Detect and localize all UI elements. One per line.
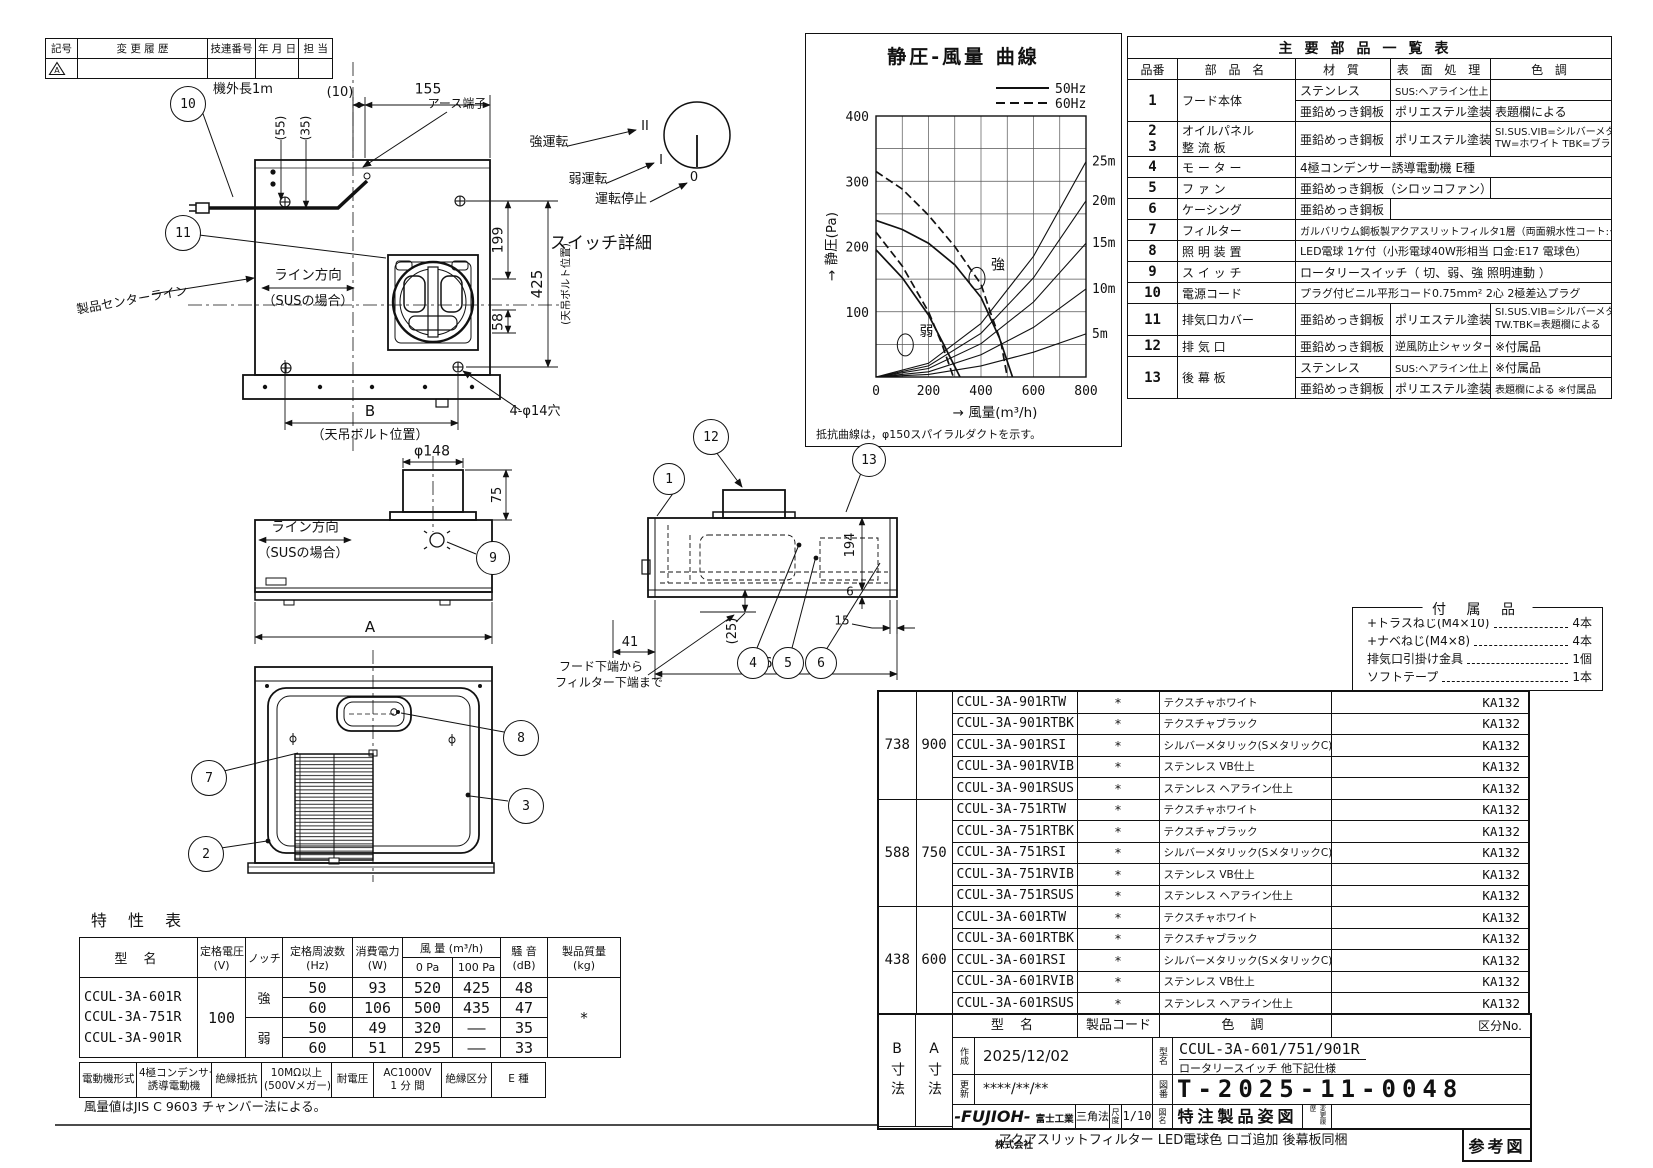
product-code: * xyxy=(1077,842,1159,864)
spec-header-model: 型 名 xyxy=(80,938,198,978)
model-name: CCUL-3A-601RSUS xyxy=(952,993,1077,1015)
x-axis-label: → 風量(m³/h) xyxy=(953,405,1038,421)
part-material: ステンレス xyxy=(1296,80,1391,101)
switch-mark-stop: 0 xyxy=(690,171,698,185)
model-row: CCUL-3A-601RSUS*ステンレス ヘアライン仕上KA132 xyxy=(878,993,1529,1015)
motor-type-label: 電動機形式 xyxy=(80,1063,137,1098)
parts-row: 23 オイルパネル整 流 板 亜鉛めっき鋼板 ポリエステル塗装 SI.SUS.V… xyxy=(1128,122,1612,157)
dim-a-value: 900 xyxy=(916,691,952,799)
title-block: B寸法 A寸法 型 名 製品コード 色 調 区分No. 作成 2025/12/0… xyxy=(877,1013,1532,1130)
model-name: CCUL-3A-751RTW xyxy=(952,799,1077,821)
model-name: CCUL-3A-901RSI xyxy=(952,735,1077,757)
line-direction-front: ライン方向 xyxy=(271,521,339,536)
balloon-13: 13 xyxy=(852,443,886,477)
parts-row: 9 ス イ ッ チ ロータリースイッチ（ 切、弱、強 照明連動 ） xyxy=(1128,262,1612,283)
insulation-resistance-label: 絶縁抵抗 xyxy=(212,1063,262,1098)
color: シルバーメタリック(SメタリックC) xyxy=(1159,735,1331,757)
parts-row: 4 モ ー タ ー 4極コンデンサー誘導電動機 E種 xyxy=(1128,157,1612,178)
spec-note: 風量値はJIS C 9603 チャンバー法による。 xyxy=(84,1100,326,1114)
part-material: 亜鉛めっき鋼板 xyxy=(1296,101,1391,122)
x-tick: 800 xyxy=(1074,384,1097,399)
kubun-no: KA132 xyxy=(1331,778,1529,800)
spec-models: CCUL-3A-601RCCUL-3A-751RCCUL-3A-901R xyxy=(80,978,198,1058)
dim-6: 6 xyxy=(846,585,854,598)
parts-row: 12 排 気 口 亜鉛めっき鋼板 逆風防止シャッター付 ※付属品 xyxy=(1128,336,1612,357)
color: ステンレス VB仕上 xyxy=(1159,756,1331,778)
kubun-no: KA132 xyxy=(1331,821,1529,843)
line-direction-top: ライン方向 xyxy=(274,269,342,284)
parts-row: 6 ケーシング 亜鉛めっき鋼板 xyxy=(1128,199,1612,220)
kubun-no: KA132 xyxy=(1331,691,1529,713)
revision-table: 記号 変 更 履 歴 技連番号 年 月 日 担 当 A xyxy=(45,38,333,79)
chart-title: 静圧-風量 曲線 xyxy=(806,42,1121,69)
part-name: フード本体 xyxy=(1178,80,1296,122)
color: テクスチャホワイト xyxy=(1159,907,1331,929)
footer-model-label: 型 名 xyxy=(952,1014,1078,1038)
x-tick: 200 xyxy=(917,384,940,399)
duct xyxy=(723,490,785,518)
spec-header-100pa: 100 Pa xyxy=(453,958,501,978)
color: シルバーメタリック(SメタリックC) xyxy=(1159,950,1331,972)
accessory-name: 排気口引掛け金具 xyxy=(1367,650,1463,667)
model-row: CCUL-3A-901RTBK*テクスチャブラックKA132 xyxy=(878,713,1529,735)
rev-header-staff: 担 当 xyxy=(299,39,333,59)
kubun-no: KA132 xyxy=(1331,993,1529,1015)
model-name: CCUL-3A-601RTBK xyxy=(952,928,1077,950)
color: テクスチャホワイト xyxy=(1159,799,1331,821)
withstand-voltage-value: AC1000V1 分 間 xyxy=(374,1063,442,1098)
spec-header-flow: 風 量 (m³/h) xyxy=(403,938,501,958)
kubun-no: KA132 xyxy=(1331,799,1529,821)
balloon-2: 2 xyxy=(188,836,224,872)
a-dim-label: A寸法 xyxy=(915,1014,953,1127)
model-name: CCUL-3A-751RVIB xyxy=(952,864,1077,886)
product-code: * xyxy=(1077,993,1159,1015)
dotted-leader xyxy=(1442,681,1568,682)
footer-color-label: 色 調 xyxy=(1159,1014,1332,1038)
part-surface: ポリエステル塗装 xyxy=(1391,122,1491,157)
curve-label: 弱 xyxy=(919,324,933,340)
model-row: 738900CCUL-3A-901RTW*テクスチャホワイトKA132 xyxy=(878,691,1529,713)
balloon-7: 7 xyxy=(191,760,227,796)
dim-a-value: 750 xyxy=(916,799,952,907)
color: ステンレス ヘアライン仕上 xyxy=(1159,885,1331,907)
accessory-item: ソフトテープ 1本 xyxy=(1367,670,1592,685)
color: テクスチャブラック xyxy=(1159,928,1331,950)
color: ステンレス VB仕上 xyxy=(1159,864,1331,886)
motor-type-value: 4極コンデンサー誘導電動機 xyxy=(137,1063,212,1098)
drawing-name: 特注製品姿図 xyxy=(1172,1104,1303,1129)
spec-header-frequency: 定格周波数(Hz) xyxy=(283,938,353,978)
bottom-view-drawing xyxy=(221,650,508,882)
y-tick: 400 xyxy=(846,110,869,125)
part-surface: ポリエステル塗装 xyxy=(1391,101,1491,122)
y-axis-label: → 静圧(Pa) xyxy=(824,212,840,281)
color: ステンレス VB仕上 xyxy=(1159,971,1331,993)
top-view-drawing xyxy=(152,62,560,452)
kubun-no: KA132 xyxy=(1331,971,1529,993)
model-name-value: CCUL-3A-601/751/901R xyxy=(1179,1040,1366,1060)
y-tick: 100 xyxy=(846,306,869,321)
created-date: 2025/12/02 xyxy=(974,1037,1153,1075)
insulation-resistance-value: 10MΩ以上(500Vメガー) xyxy=(262,1063,332,1098)
kubun-no: KA132 xyxy=(1331,928,1529,950)
spec-table: 型 名 定格電圧(V) ノッチ 定格周波数(Hz) 消費電力(W) 風 量 (m… xyxy=(79,937,621,1058)
product-code: * xyxy=(1077,864,1159,886)
scale-value: 1/10 xyxy=(1121,1104,1153,1129)
model-row: CCUL-3A-601RVIB*ステンレス VB仕上KA132 xyxy=(878,971,1529,993)
switch-stop-label: 運転停止 xyxy=(595,193,647,207)
ceiling-bolt-bottom: （天吊ボルト位置） xyxy=(311,429,428,443)
drawing-name-label: 図名 xyxy=(1152,1104,1173,1129)
projection-method: 三角法 xyxy=(1075,1104,1110,1129)
accessory-qty: 1個 xyxy=(1572,650,1592,667)
model-table: 738900CCUL-3A-901RTW*テクスチャホワイトKA132CCUL-… xyxy=(877,690,1530,1016)
revision-row: A xyxy=(46,59,333,79)
drawing-number-label: 図番 xyxy=(1152,1074,1173,1105)
logo-plate xyxy=(266,578,286,585)
dim-10: (10) xyxy=(327,86,354,100)
sus-case-top: （SUSの場合） xyxy=(262,295,353,309)
spec-header-power: 消費電力(W) xyxy=(353,938,403,978)
dim-A: A xyxy=(365,619,375,636)
balloon-4: 4 xyxy=(737,647,769,679)
chart-plot: 0200400600800100200300400→ 静圧(Pa)→ 風量(m³… xyxy=(806,34,1118,443)
balloon-11: 11 xyxy=(165,215,201,251)
latch-icon xyxy=(290,733,455,746)
earth-terminal xyxy=(364,173,370,179)
chart-note: 抵抗曲線は，φ150スパイラルダクトを示す。 xyxy=(816,426,1041,442)
accessories-box: 付 属 品 +トラスねじ(M4×10) 4本 +ナベねじ(M4×8) 4本 排気… xyxy=(1352,607,1603,691)
product-code: * xyxy=(1077,950,1159,972)
duct-length-label: 25m xyxy=(1092,155,1116,170)
x-tick: 400 xyxy=(969,384,992,399)
switch-strong-label: 強運転 xyxy=(529,136,568,150)
product-code: * xyxy=(1077,971,1159,993)
parts-row: 5 フ ァ ン 亜鉛めっき鋼板（シロッコファン） xyxy=(1128,178,1612,199)
balloon-6: 6 xyxy=(805,647,837,679)
color: テクスチャブラック xyxy=(1159,821,1331,843)
reference-drawing-badge: 参考図 xyxy=(1462,1128,1532,1162)
kubun-no: KA132 xyxy=(1331,885,1529,907)
color: シルバーメタリック(SメタリックC) xyxy=(1159,842,1331,864)
model-row: CCUL-3A-901RVIB*ステンレス VB仕上KA132 xyxy=(878,756,1529,778)
model-name: CCUL-3A-751RTBK xyxy=(952,821,1077,843)
updated-date: ****/**/** xyxy=(974,1074,1153,1105)
part-material: 亜鉛めっき鋼板 xyxy=(1296,122,1391,157)
product-code: * xyxy=(1077,928,1159,950)
dim-phi148: φ148 xyxy=(414,444,450,459)
dim-a-value: 600 xyxy=(916,907,952,1015)
model-row: 438600CCUL-3A-601RTW*テクスチャホワイトKA132 xyxy=(878,907,1529,929)
accessory-qty: 4本 xyxy=(1572,632,1592,649)
parts-row: 7 フィルター ガルバリウム鋼板製アクアスリットフィルタ1層（両面親水性コート:… xyxy=(1128,220,1612,241)
balloon-1: 1 xyxy=(653,463,685,495)
spec-row: CCUL-3A-601RCCUL-3A-751RCCUL-3A-901R 100… xyxy=(80,978,621,998)
product-code: * xyxy=(1077,756,1159,778)
kubun-no: KA132 xyxy=(1331,864,1529,886)
svg-text:A: A xyxy=(54,66,60,75)
spec-header-mass: 製品質量(kg) xyxy=(548,938,621,978)
rev-header-symbol: 記号 xyxy=(46,39,78,59)
model-name: CCUL-3A-601RTW xyxy=(952,907,1077,929)
model-name-label: 型名 xyxy=(1152,1037,1173,1075)
spec-voltage: 100 xyxy=(198,978,246,1058)
dim-425: 425 xyxy=(529,270,546,299)
parts-row: 1 フード本体 ステンレス SUS:ヘアライン仕上 VIB:VB仕上 xyxy=(1128,80,1612,101)
power-cord xyxy=(209,181,367,208)
model-name: CCUL-3A-751RSI xyxy=(952,842,1077,864)
kubun-no: KA132 xyxy=(1331,842,1529,864)
dim-15: 15 xyxy=(834,614,849,627)
model-row: CCUL-3A-601RTBK*テクスチャブラックKA132 xyxy=(878,928,1529,950)
model-row: CCUL-3A-751RSUS*ステンレス ヘアライン仕上KA132 xyxy=(878,885,1529,907)
accessory-name: ソフトテープ xyxy=(1367,668,1438,685)
parts-header-color: 色 調 xyxy=(1491,59,1612,80)
chart-series-強 50Hz xyxy=(876,220,1013,377)
balloon-8: 8 xyxy=(503,720,539,756)
parts-header-no: 品番 xyxy=(1128,59,1178,80)
parts-row: 8 照 明 装 置 LED電球 1ケ付（小形電球40W形相当 口金:E17 電球… xyxy=(1128,241,1612,262)
parts-header-material: 材 質 xyxy=(1296,59,1391,80)
footer-kubun-label: 区分No. xyxy=(1331,1014,1531,1038)
part-surface: SUS:ヘアライン仕上 VIB:VB仕上 xyxy=(1391,80,1491,101)
spec-header-notch: ノッチ xyxy=(246,938,283,978)
product-code: * xyxy=(1077,821,1159,843)
pressure-flow-chart: 静圧-風量 曲線 0200400600800100200300400→ 静圧(P… xyxy=(805,33,1122,447)
parts-row: 13 後 幕 板 ステンレス SUS:ヘアライン仕上 VIB:VB仕上 ※付属品 xyxy=(1128,357,1612,378)
parts-table: 主要部品一覧表 品番 部 品 名 材 質 表 面 処 理 色 調 1 フード本体… xyxy=(1127,36,1612,399)
balloon-9: 9 xyxy=(476,541,510,575)
footer-code-label: 製品コード xyxy=(1077,1014,1160,1038)
hood-note-line1: フード下端から xyxy=(559,660,643,673)
parts-header-name: 部 品 名 xyxy=(1178,59,1296,80)
spec-header-0pa: 0 Pa xyxy=(403,958,453,978)
kubun-no: KA132 xyxy=(1331,950,1529,972)
accessory-qty: 1本 xyxy=(1572,668,1592,685)
dotted-leader xyxy=(1494,627,1569,628)
duct-length-label: 20m xyxy=(1092,194,1116,209)
kubun-no: KA132 xyxy=(1331,907,1529,929)
balloon-5: 5 xyxy=(772,647,804,679)
color: ステンレス ヘアライン仕上 xyxy=(1159,778,1331,800)
ceiling-bolt-side: (天吊ボルト位置) xyxy=(561,243,573,325)
dim-b-value: 438 xyxy=(878,907,916,1015)
product-code: * xyxy=(1077,713,1159,735)
created-label: 作成 xyxy=(952,1037,975,1075)
part-color: 表題欄による xyxy=(1491,101,1612,122)
product-code: * xyxy=(1077,778,1159,800)
product-code: * xyxy=(1077,691,1159,713)
accessory-item: +ナベねじ(M4×8) 4本 xyxy=(1367,634,1592,649)
notch-strong: 強 xyxy=(246,978,283,1018)
switch-mark-weak: I xyxy=(659,154,663,168)
dim-outer-length: 機外長1m xyxy=(213,83,273,97)
plug-icon xyxy=(196,203,209,213)
duct-length-label: 10m xyxy=(1092,282,1116,297)
balloon-10: 10 xyxy=(170,86,206,122)
dim-B: B xyxy=(365,403,375,420)
model-row: CCUL-3A-901RSI*シルバーメタリック(SメタリックC)KA132 xyxy=(878,735,1529,757)
balloon-3: 3 xyxy=(508,788,544,824)
rev-header-history: 変 更 履 歴 xyxy=(78,39,208,59)
dim-199: 199 xyxy=(491,227,506,254)
dim-b-value: 738 xyxy=(878,691,916,799)
dim-55: (55) xyxy=(274,116,287,141)
model-row: 588750CCUL-3A-751RTW*テクスチャホワイトKA132 xyxy=(878,799,1529,821)
model-row: CCUL-3A-751RTBK*テクスチャブラックKA132 xyxy=(878,821,1529,843)
withstand-voltage-label: 耐電圧 xyxy=(332,1063,374,1098)
duct-length-label: 15m xyxy=(1092,236,1116,251)
model-name: CCUL-3A-901RTBK xyxy=(952,713,1077,735)
sus-case-front: （SUSの場合） xyxy=(257,547,348,561)
parts-row: 10 電源コード プラグ付ビニル平形コード0.75mm² 2心 2極差込プラグ xyxy=(1128,283,1612,304)
model-row: CCUL-3A-751RSI*シルバーメタリック(SメタリックC)KA132 xyxy=(878,842,1529,864)
spec-table-title: 特 性 表 xyxy=(91,912,189,930)
kubun-no: KA132 xyxy=(1331,713,1529,735)
balloon-12: 12 xyxy=(693,419,729,455)
curve-label: 強 xyxy=(991,257,1005,273)
dim-155: 155 xyxy=(415,82,442,97)
revision-symbol: A xyxy=(46,59,78,79)
dim-b-value: 588 xyxy=(878,799,916,907)
model-name: CCUL-3A-901RTW xyxy=(952,691,1077,713)
dim-75: 75 xyxy=(491,487,505,504)
model-row: CCUL-3A-751RVIB*ステンレス VB仕上KA132 xyxy=(878,864,1529,886)
model-name: CCUL-3A-751RSUS xyxy=(952,885,1077,907)
switch-weak-label: 弱運転 xyxy=(568,173,607,187)
parts-table-title: 主要部品一覧表 xyxy=(1128,37,1612,59)
rev-history-label: 変更履歴 xyxy=(1302,1104,1332,1129)
drawing-sheet: 記号 変 更 履 歴 技連番号 年 月 日 担 当 A 静圧-風量 曲線 020… xyxy=(0,0,1653,1168)
model-name: CCUL-3A-901RSUS xyxy=(952,778,1077,800)
parts-row: 11 排気口カバー 亜鉛めっき鋼板 ポリエステル塗装 SI.SUS.VIB=シル… xyxy=(1128,304,1612,336)
spec-mass: * xyxy=(548,978,621,1058)
dim-25: (25) xyxy=(726,618,740,645)
product-code: * xyxy=(1077,799,1159,821)
insulation-class-label: 絶縁区分 xyxy=(442,1063,492,1098)
y-tick: 200 xyxy=(846,241,869,256)
duct-length-label: 5m xyxy=(1092,327,1108,342)
drawing-number: T-2025-11-0048 xyxy=(1172,1074,1531,1105)
dim-41: 41 xyxy=(622,636,639,650)
legend-label: 60Hz xyxy=(1055,97,1086,112)
updated-label: 更新 xyxy=(952,1074,975,1105)
model-name: CCUL-3A-601RSI xyxy=(952,950,1077,972)
notch-weak: 弱 xyxy=(246,1018,283,1058)
insulation-class-value: E 種 xyxy=(492,1063,546,1098)
earth-terminal-label: アース端子 xyxy=(428,97,487,110)
light-icon xyxy=(424,531,450,549)
switch-detail-title: スイッチ詳細 xyxy=(550,235,652,254)
kubun-no: KA132 xyxy=(1331,735,1529,757)
dotted-leader xyxy=(1467,663,1568,664)
rev-header-number: 技連番号 xyxy=(208,39,256,59)
curve-label-loop xyxy=(897,334,913,356)
accessory-item: 排気口引掛け金具 1個 xyxy=(1367,652,1592,667)
product-code: * xyxy=(1077,735,1159,757)
dim-194: 194 xyxy=(844,533,858,558)
y-tick: 300 xyxy=(846,175,869,190)
accessories-title: 付 属 品 xyxy=(1422,599,1533,619)
spec-header-voltage: 定格電圧(V) xyxy=(198,938,246,978)
model-row: CCUL-3A-901RSUS*ステンレス ヘアライン仕上KA132 xyxy=(878,778,1529,800)
kubun-no: KA132 xyxy=(1331,756,1529,778)
rev-header-date: 年 月 日 xyxy=(256,39,299,59)
model-row: CCUL-3A-601RSI*シルバーメタリック(SメタリックC)KA132 xyxy=(878,950,1529,972)
product-code: * xyxy=(1077,907,1159,929)
parts-header-surface: 表 面 処 理 xyxy=(1391,59,1491,80)
dotted-leader xyxy=(1474,645,1568,646)
color: テクスチャブラック xyxy=(1159,713,1331,735)
chart-series-強 60Hz xyxy=(876,172,1007,378)
b-dim-label: B寸法 xyxy=(878,1014,916,1127)
fujioh-logo: -FUJIOH- xyxy=(954,1107,1030,1126)
bottom-note: アクアスリットフィルター LED電球色 ロゴ追加 後幕板同梱 xyxy=(999,1134,1348,1148)
part-no: 1 xyxy=(1128,80,1178,122)
dim-35: (35) xyxy=(299,116,312,141)
hood-note-line2: フィルター下端まで xyxy=(555,676,663,689)
dim-58: 58 xyxy=(491,313,506,331)
accessory-qty: 4本 xyxy=(1572,614,1592,631)
model-name: CCUL-3A-901RVIB xyxy=(952,756,1077,778)
accessory-name: +ナベねじ(M4×8) xyxy=(1367,632,1470,649)
product-code: * xyxy=(1077,885,1159,907)
switch-mark-strong: II xyxy=(641,120,649,134)
color: テクスチャホワイト xyxy=(1159,691,1331,713)
model-name: CCUL-3A-601RVIB xyxy=(952,971,1077,993)
spec-header-noise: 騒 音(dB) xyxy=(501,938,548,978)
x-tick: 0 xyxy=(872,384,880,399)
legend-label: 50Hz xyxy=(1055,82,1086,97)
motor-spec-table: 電動機形式 4極コンデンサー誘導電動機 絶縁抵抗 10MΩ以上(500Vメガー)… xyxy=(79,1062,546,1098)
holes-4-phi14: 4-φ14穴 xyxy=(509,405,560,419)
color: ステンレス ヘアライン仕上 xyxy=(1159,993,1331,1015)
x-tick: 600 xyxy=(1022,384,1045,399)
